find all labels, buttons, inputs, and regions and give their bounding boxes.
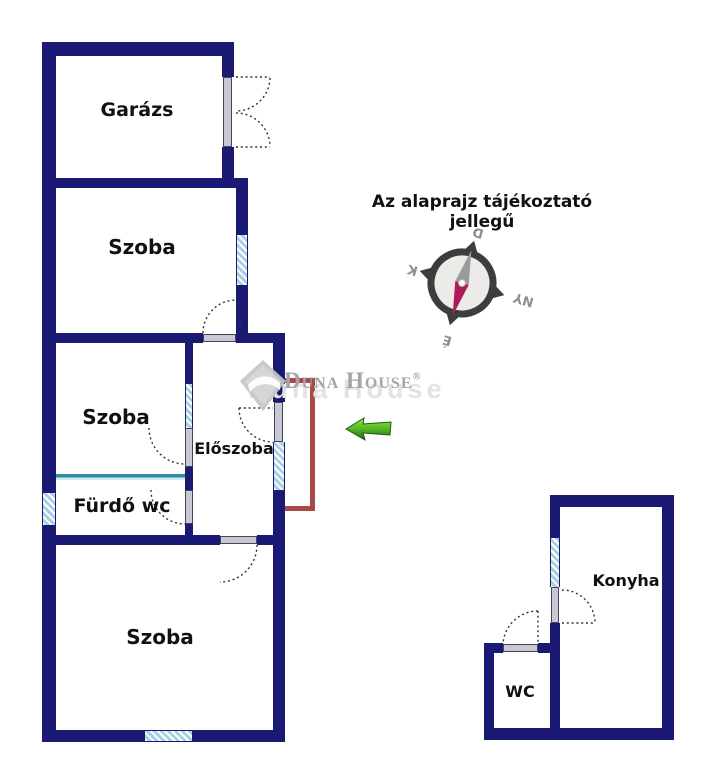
entrance-marker-line [285, 506, 315, 511]
room-label-hall: Előszoba [194, 439, 274, 458]
compass-rose: É K D NY [402, 223, 522, 343]
watermark-logo [238, 358, 288, 414]
floor-plan: Duna House Duna House® Az alaprajz tájék… [0, 0, 704, 768]
entrance-arrow-icon [345, 416, 393, 442]
compass-dial [388, 209, 536, 357]
room-label-wc: WC [490, 682, 550, 701]
room-label-room3: Szoba [100, 625, 220, 649]
room-label-kitchen: Konyha [586, 571, 666, 590]
watermark-wordmark: Duna House® [284, 368, 421, 394]
room-label-garage: Garázs [77, 99, 197, 121]
compass-rotor: É K D NY [388, 209, 536, 357]
room-label-room1: Szoba [82, 235, 202, 259]
room-label-bathroom: Fürdő wc [62, 495, 182, 517]
room-label-room2: Szoba [56, 405, 176, 429]
